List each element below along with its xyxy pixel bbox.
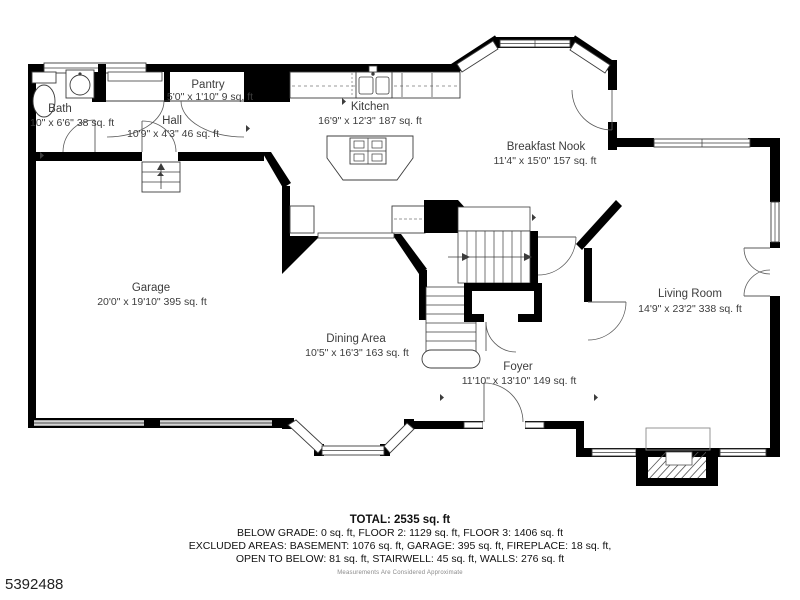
dining-dims: 10'5" x 16'3" 163 sq. ft [305, 347, 409, 359]
kitchen-label: Kitchen [351, 101, 389, 113]
bath-label: Bath [48, 103, 72, 115]
summary-line-excluded-2: OPEN TO BELOW: 81 sq. ft, STAIRWELL: 45 … [0, 553, 800, 566]
summary-line-excluded: EXCLUDED AREAS: BASEMENT: 1076 sq. ft, G… [0, 540, 800, 553]
toilet-tank [32, 72, 56, 83]
floor-plan-svg: Bath 10" x 6'6" 38 sq. ft Pantry 5'0" x … [0, 0, 800, 515]
pantry-label: Pantry [191, 79, 224, 91]
dining-bay-window-right [384, 423, 414, 453]
garage-dims: 20'0" x 19'10" 395 sq. ft [97, 296, 207, 308]
dining-left-wall [282, 186, 290, 238]
living-room-label: Living Room [658, 288, 722, 300]
front-door-arc [484, 383, 523, 422]
kitchen-dining-divider [290, 206, 425, 238]
cabinet-right [392, 206, 425, 233]
french-doors [744, 248, 770, 296]
tick-mark [594, 394, 598, 401]
foyer-closet-door-gap [484, 314, 518, 323]
right-wall-upper [770, 138, 780, 202]
stair-bottom-rail [422, 350, 480, 368]
kitchen-dims: 16'9" x 12'3" 187 sq. ft [318, 115, 422, 127]
foyer-label: Foyer [503, 361, 533, 373]
nook-foyer-door-arc [538, 237, 576, 275]
garage-label: Garage [132, 282, 170, 294]
entry-sidelite-left [464, 422, 483, 428]
total-area: TOTAL: 2535 sq. ft [0, 514, 800, 527]
right-wall-mid [770, 242, 780, 248]
stair-landing-upper [458, 207, 530, 231]
dining-label: Dining Area [326, 333, 386, 345]
right-wall-lower [770, 296, 780, 457]
closet-door-arc [486, 322, 516, 352]
fireplace-hearth [646, 428, 710, 450]
summary-line-floors: BELOW GRADE: 0 sq. ft, FLOOR 2: 1129 sq.… [0, 527, 800, 540]
kitchen-tall-cabinet [252, 64, 290, 102]
foyer-closet-interior [472, 291, 534, 314]
cased-opening [318, 233, 394, 238]
dining-nw-angled-wall [282, 236, 320, 274]
sink-faucet-dot [371, 72, 374, 75]
dining-bay-window-left [288, 420, 324, 453]
nook-living-diagonal-wall [576, 200, 622, 250]
living-room-dims: 14'9" x 23'2" 338 sq. ft [638, 303, 742, 315]
floor-plan-page: Bath 10" x 6'6" 38 sq. ft Pantry 5'0" x … [0, 0, 800, 600]
living-top-wall-b [748, 138, 780, 147]
breakfast-nook-dims: 11'4" x 15'0" 157 sq. ft [494, 155, 597, 167]
garage-corner-diagonal [262, 152, 291, 188]
foyer-living-door-arc [588, 302, 626, 340]
vanity-sink [70, 75, 90, 95]
nook-side-door-arc [572, 90, 612, 130]
area-summary: TOTAL: 2535 sq. ft BELOW GRADE: 0 sq. ft… [0, 514, 800, 576]
front-door [483, 383, 525, 429]
cabinet-left [290, 206, 314, 233]
sink-faucet [369, 66, 377, 72]
garage-top-wall-a [28, 152, 142, 161]
faucet-icon [78, 72, 81, 75]
firebox-inner [666, 452, 692, 465]
closet-divider-left [98, 64, 106, 102]
tick-mark [532, 214, 536, 221]
entry-sidelite-right [525, 422, 544, 428]
listing-id: 5392488 [5, 576, 63, 593]
tick-mark [246, 125, 250, 132]
nook-right-wall-b [608, 122, 617, 150]
bath-dims: 10" x 6'6" 38 sq. ft [30, 117, 114, 129]
foyer-living-wall [584, 248, 592, 302]
hall-label: Hall [162, 115, 182, 127]
hall-dims: 10'9" x 4'3" 46 sq. ft [127, 128, 219, 140]
disclaimer-text: Measurements Are Considered Approximate [0, 570, 800, 576]
breakfast-nook-bay [452, 37, 614, 73]
dining-ne-angled-wall [392, 234, 427, 274]
closet-shelf [108, 72, 162, 81]
tick-mark [342, 98, 346, 105]
tick-mark [440, 394, 444, 401]
living-top-wall-a [612, 138, 654, 147]
staircase [419, 200, 542, 368]
garage-top-wall-b [178, 152, 264, 161]
pantry-dims: 5'0" x 1'10" 9 sq. ft [167, 91, 253, 103]
stair-nw-wall [424, 200, 458, 233]
breakfast-nook-label: Breakfast Nook [507, 141, 586, 153]
foyer-dims: 11'10" x 13'10" 149 sq. ft [462, 375, 577, 387]
front-door-gap [483, 421, 525, 429]
